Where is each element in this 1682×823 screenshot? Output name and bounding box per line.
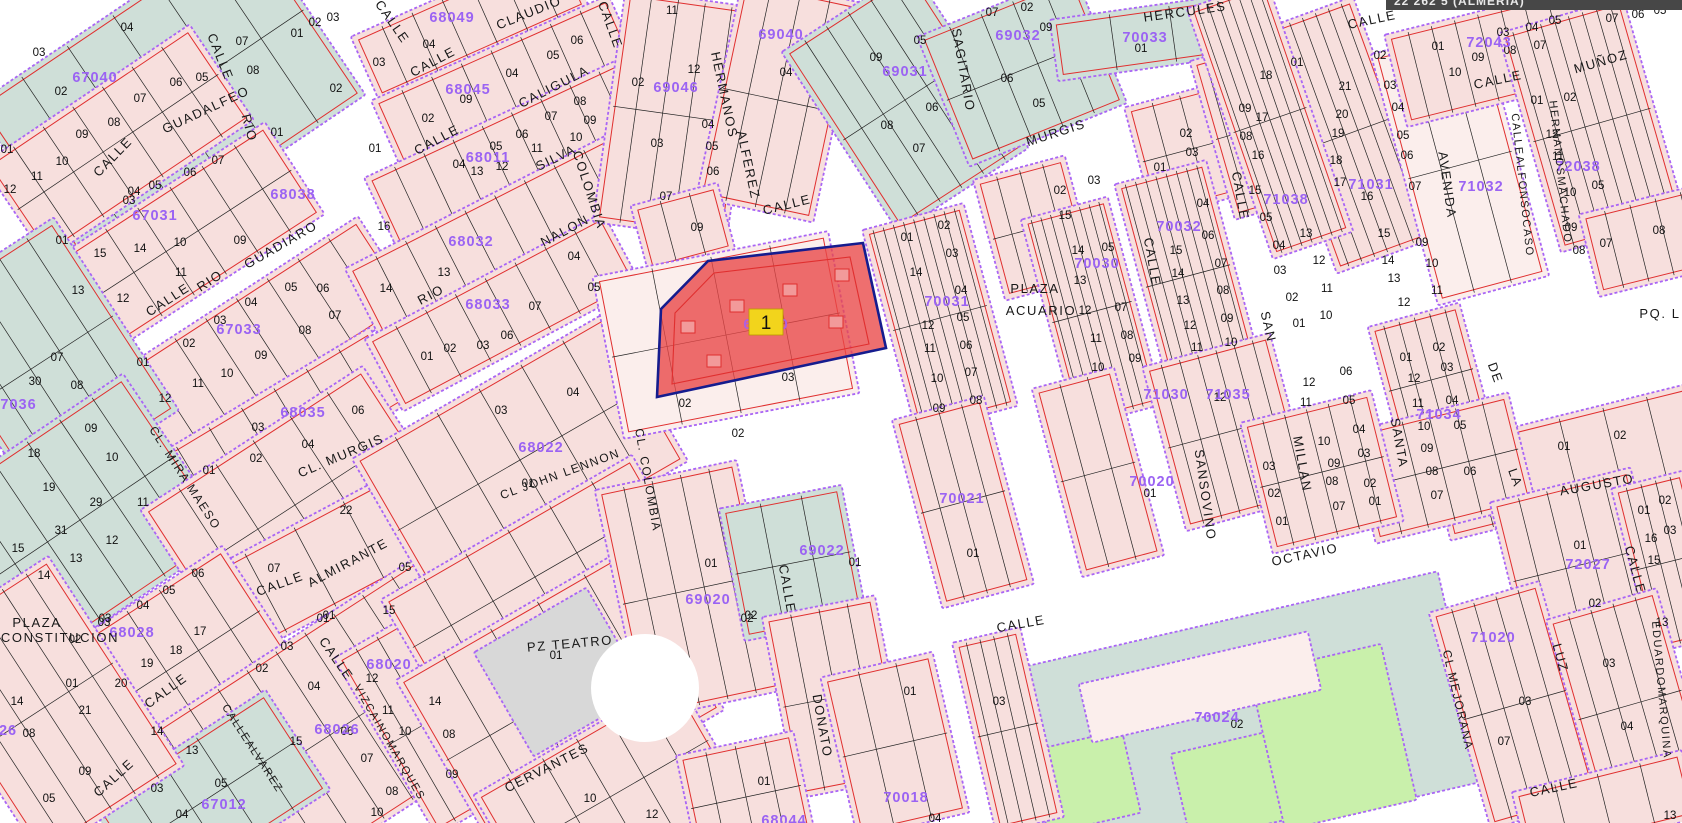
info-bar: 22 262 5 (ALMERIA) — [1386, 0, 1682, 10]
parcel-number: 05 — [957, 312, 970, 324]
selected-parcel-marker[interactable]: 1 — [749, 309, 783, 335]
block-id-label: 70030 — [1074, 256, 1119, 272]
parcel-number: 11 — [192, 378, 204, 390]
parcel-number: 05 — [196, 72, 209, 84]
parcel-number: 05 — [914, 35, 927, 47]
parcel-number: 08 — [108, 117, 121, 129]
parcel-number: 04 — [423, 39, 436, 51]
parcel-number: 05 — [1343, 395, 1356, 407]
courtyard — [707, 355, 721, 367]
block-id-label: 70021 — [939, 491, 984, 507]
parcel-number: 09 — [1129, 353, 1142, 365]
parcel-number: 02 — [256, 663, 269, 675]
parcel-number: 03 — [782, 372, 795, 384]
parcel-number: 08 — [23, 728, 36, 740]
parcel-number: 09 — [691, 222, 704, 234]
parcel-number: 02 — [1589, 598, 1602, 610]
parcel-number: 02 — [938, 220, 951, 232]
parcel-number: 06 — [571, 35, 584, 47]
parcel-number: 03 — [1186, 147, 1199, 159]
parcel-number: 03 — [1358, 448, 1371, 460]
parcel-number: 02 — [1614, 430, 1627, 442]
block-id-label: 68033 — [465, 297, 510, 313]
parcel-number: 12 — [106, 535, 119, 547]
parcel-number: 11 — [137, 497, 149, 509]
parcel-number: 02 — [250, 453, 263, 465]
parcel-number: 04 — [137, 600, 150, 612]
parcel-number: 07 — [268, 563, 281, 575]
roundabout — [591, 634, 699, 742]
parcel-number: 12 — [1398, 297, 1411, 309]
parcel-number: 02 — [1364, 478, 1377, 490]
parcel-number: 05 — [1033, 98, 1046, 110]
parcel-number: 02 — [444, 343, 457, 355]
parcel-number: 13 — [471, 166, 484, 178]
parcel-number: 01 — [369, 143, 382, 155]
parcel-number: 11 — [1321, 283, 1333, 295]
parcel-number: 08 — [71, 380, 84, 392]
block-id-label: 69046 — [653, 80, 698, 96]
parcel-number: 13 — [1074, 275, 1087, 287]
parcel-number: 11 — [31, 171, 43, 183]
parcel-number: 02 — [679, 398, 692, 410]
parcel-number: 16 — [378, 221, 391, 233]
parcel-number: 10 — [1449, 67, 1462, 79]
parcel-number: 13 — [438, 267, 451, 279]
parcel-number: 02 — [732, 428, 745, 440]
parcel-number: 09 — [1421, 443, 1434, 455]
parcel-number: 04 — [245, 297, 258, 309]
parcel-number: 10 — [1092, 362, 1105, 374]
block-id-label: 71020 — [1470, 630, 1515, 646]
block-id-label: 71031 — [1348, 177, 1393, 193]
parcel-number: 03 — [327, 12, 340, 24]
parcel-number: 07 — [965, 367, 978, 379]
block-id-label: 68045 — [445, 82, 490, 98]
parcel-number: 03 — [1088, 175, 1101, 187]
parcel-number: 07 — [1431, 490, 1444, 502]
parcel-number: 12 — [1184, 320, 1197, 332]
parcel-number: 03 — [1519, 696, 1532, 708]
parcel-number: 18 — [1260, 70, 1273, 82]
parcel-number: 03 — [993, 696, 1006, 708]
parcel-number: 09 — [1416, 237, 1429, 249]
parcel-number: 08 — [386, 786, 399, 798]
parcel-number: 07 — [329, 310, 342, 322]
parcel-number: 01 — [203, 465, 216, 477]
parcel-number: 05 — [43, 793, 56, 805]
parcel-number: 04 — [302, 439, 315, 451]
parcel-number: 08 — [881, 120, 894, 132]
parcel-number: 04 — [1353, 424, 1366, 436]
block-id-label: 68038 — [270, 187, 315, 203]
parcel-number: 14 — [38, 570, 51, 582]
parcel-number: 10 — [1320, 310, 1333, 322]
parcel-number: 04 — [1621, 721, 1634, 733]
parcel-number: 08 — [299, 325, 312, 337]
parcel-number: 01 — [849, 557, 862, 569]
parcel-number: 09 — [76, 129, 89, 141]
parcel-number: 02 — [1659, 495, 1672, 507]
parcel-number: 19 — [141, 658, 154, 670]
parcel-number: 02 — [1268, 488, 1281, 500]
parcel-number: 01 — [1638, 505, 1651, 517]
parcel-number: 01 — [1531, 95, 1544, 107]
parcel-number: 06 — [1401, 150, 1414, 162]
parcel-number: 12 — [366, 673, 379, 685]
parcel-number: 06 — [184, 167, 197, 179]
block-id-label: 71035 — [1205, 387, 1250, 403]
parcel-number: 16 — [1645, 533, 1658, 545]
block-id-label: 69040 — [758, 27, 803, 43]
parcel-number: 18 — [1330, 155, 1343, 167]
parcel-number: 02 — [309, 17, 322, 29]
parcel-number: 12 — [1079, 305, 1092, 317]
parcel-number: 08 — [1240, 131, 1253, 143]
block-id-label: 68044 — [761, 813, 806, 823]
block-id-label: 70018 — [883, 790, 928, 806]
block-id-label: 68022 — [518, 440, 563, 456]
parcel-number: 15 — [1170, 245, 1183, 257]
parcel-number: 04 — [702, 119, 715, 131]
parcel-number: 04 — [453, 159, 466, 171]
parcel-number: 02 — [1564, 92, 1577, 104]
parcel-number: 06 — [1202, 230, 1215, 242]
parcel-number: 06 — [352, 405, 365, 417]
parcel-number: 09 — [584, 115, 597, 127]
parcel-number: 02 — [1180, 128, 1193, 140]
parcel-number: 18 — [28, 448, 41, 460]
parcel-number: 15 — [1648, 555, 1661, 567]
parcel-number: 12 — [1303, 377, 1316, 389]
parcel-number: 13 — [1177, 295, 1190, 307]
parcel-number: 11 — [1191, 342, 1203, 354]
parcel-number: 06 — [516, 129, 529, 141]
parcel-number: 10 — [221, 368, 234, 380]
parcel-number: 31 — [55, 525, 68, 537]
parcel-number: 01 — [758, 776, 771, 788]
block-id-label: 71034 — [1416, 407, 1461, 423]
parcel-number: 09 — [1472, 52, 1485, 64]
parcel-number: 08 — [1326, 476, 1339, 488]
parcel-number: 07 — [1534, 40, 1547, 52]
block-id-label: 70031 — [924, 294, 969, 310]
parcel-number: 08 — [1426, 466, 1439, 478]
parcel-number: 06 — [707, 166, 720, 178]
parcel-number: 14 — [151, 726, 164, 738]
parcel-number: 01 — [901, 232, 914, 244]
block-id-label: 69031 — [882, 64, 927, 80]
parcel-number: 10 — [1318, 436, 1331, 448]
parcel-number: 01 — [1154, 162, 1167, 174]
parcel-number: 04 — [1526, 22, 1539, 34]
parcel-number: 03 — [123, 195, 136, 207]
parcel-number: 09 — [79, 766, 92, 778]
parcel-number: 10 — [1225, 337, 1238, 349]
parcel-number: 15 — [12, 543, 25, 555]
block-id-label: 67040 — [72, 70, 117, 86]
parcel-number: 01 — [1558, 441, 1571, 453]
block-id-label: 72027 — [1565, 557, 1610, 573]
parcel-number: 03 — [281, 641, 294, 653]
parcel-number: 20 — [115, 678, 128, 690]
parcel-number: 02 — [1433, 342, 1446, 354]
parcel-number: 09 — [446, 769, 459, 781]
parcel-number: 05 — [547, 50, 560, 62]
parcel-number: 09 — [255, 350, 268, 362]
parcel-number: 02 — [741, 613, 754, 625]
parcel-number: 14 — [380, 283, 393, 295]
parcel-number: 05 — [149, 180, 162, 192]
parcel-number: 29 — [90, 497, 103, 509]
parcel-number: 07 — [1215, 258, 1228, 270]
info-bar-text: 22 262 5 (ALMERIA) — [1386, 0, 1682, 8]
parcel-number: 01 — [66, 678, 79, 690]
parcel-number: 09 — [1221, 313, 1234, 325]
parcel-number: 07 — [986, 7, 999, 19]
parcel-number: 04 — [176, 809, 189, 821]
street-label: PQ. L — [1639, 306, 1680, 321]
parcel-number: 10 — [399, 726, 412, 738]
block-id-label: 70032 — [1156, 219, 1201, 235]
block-id-label: 67031 — [132, 208, 177, 224]
parcel-number: 07 — [1333, 501, 1346, 513]
parcel-number: 06 — [170, 77, 183, 89]
parcel-number: 20 — [1336, 109, 1349, 121]
parcel-number: 02 — [330, 83, 343, 95]
parcel-number: 13 — [1664, 810, 1677, 822]
parcel-number: 02 — [632, 77, 645, 89]
cadastral-map[interactable]: 0403020605070809101112010708010203030201… — [0, 0, 1682, 823]
parcel-number: 06 — [960, 340, 973, 352]
parcel-number: 06 — [192, 568, 205, 580]
parcel-number: 08 — [970, 395, 983, 407]
parcel-number: 03 — [1603, 658, 1616, 670]
block-id-label: 69032 — [995, 28, 1040, 44]
parcel-number: 01 — [1, 144, 14, 156]
block-id-label: 69020 — [685, 592, 730, 608]
parcel-number: 03 — [33, 47, 46, 59]
parcel-number: 07 — [660, 191, 673, 203]
courtyard — [681, 321, 695, 333]
parcel-number: 11 — [1431, 285, 1443, 297]
parcel-number: 14 — [11, 696, 24, 708]
block-id-label: 68011 — [466, 150, 511, 166]
parcel-number: 07 — [1409, 181, 1422, 193]
parcel-number: 08 — [443, 729, 456, 741]
parcel-number: 09 — [870, 52, 883, 64]
street-label: PLAZA — [1010, 281, 1059, 296]
parcel-number: 01 — [705, 558, 718, 570]
parcel-number: 08 — [247, 65, 260, 77]
parcel-number: 01 — [1369, 496, 1382, 508]
parcel-number: 02 — [422, 113, 435, 125]
parcel-number: 12 — [1313, 255, 1326, 267]
block-id-label: 69022 — [799, 543, 844, 559]
parcel-number: 10 — [584, 793, 597, 805]
parcel-number: 10 — [931, 373, 944, 385]
parcel-number: 02 — [55, 86, 68, 98]
parcel-number: 11 — [666, 5, 678, 17]
block-id-label: 71038 — [1263, 192, 1308, 208]
parcel-number: 11 — [175, 267, 187, 279]
block-id-label: 68032 — [448, 234, 493, 250]
parcel-number: 06 — [1632, 9, 1645, 21]
parcel-number: 06 — [1340, 366, 1353, 378]
parcel-number: 05 — [1592, 180, 1605, 192]
parcel-number: 14 — [910, 267, 923, 279]
street-label: DE — [1485, 360, 1506, 385]
map-viewport[interactable]: 0403020605070809101112010708010203030201… — [0, 0, 1682, 823]
parcel-number: 07 — [545, 111, 558, 123]
parcel-number: 01 — [967, 548, 980, 560]
block-id-label: 71030 — [1143, 387, 1188, 403]
block-id-label: 67033 — [216, 322, 261, 338]
parcel-number: 08 — [574, 96, 587, 108]
parcel-number: 21 — [79, 705, 92, 717]
block-id-label: 68049 — [429, 10, 474, 26]
parcel-number: 01 — [1291, 57, 1304, 69]
parcel-number: 08 — [1653, 225, 1666, 237]
parcel-number: 02 — [1286, 292, 1299, 304]
parcel-number: 07 — [1498, 736, 1511, 748]
parcel-number: 09 — [933, 403, 946, 415]
parcel-number: 15 — [1249, 185, 1262, 197]
parcel-number: 14 — [1382, 255, 1395, 267]
parcel-number: 11 — [924, 343, 936, 355]
parcel-number: 07 — [361, 753, 374, 765]
parcel-number: 05 — [163, 585, 176, 597]
parcel-number: 12 — [1408, 373, 1421, 385]
parcel-number: 12 — [117, 293, 130, 305]
parcel-number: 05 — [588, 282, 601, 294]
parcel-number: 01 — [421, 351, 434, 363]
parcel-number: 02 — [183, 338, 196, 350]
parcel-number: 02 — [1021, 2, 1034, 14]
parcel-number: 01 — [137, 357, 150, 369]
parcel-number: 03 — [1384, 80, 1397, 92]
parcel-number: 12 — [922, 320, 935, 332]
parcel-number: 10 — [371, 807, 384, 819]
parcel-number: 07 — [134, 93, 147, 105]
parcel-number: 01 — [1400, 352, 1413, 364]
parcel-number: 07 — [913, 143, 926, 155]
courtyard — [730, 300, 744, 312]
parcel-number: 01 — [317, 613, 330, 625]
parcel-number: 12 — [4, 184, 17, 196]
block-id-label: 70020 — [1129, 474, 1174, 490]
parcel-number: 13 — [186, 745, 199, 757]
parcel-number: 07 — [236, 36, 249, 48]
parcel-number: 01 — [1432, 41, 1445, 53]
parcel-number: 15 — [290, 736, 303, 748]
parcel-number: 13 — [70, 553, 83, 565]
parcel-number: 04 — [1392, 102, 1405, 114]
parcel-number: 30 — [29, 376, 42, 388]
parcel-number: 15 — [383, 605, 396, 617]
parcel-number: 13 — [1300, 228, 1313, 240]
parcel-number: 02 — [1374, 50, 1387, 62]
courtyard — [783, 284, 797, 296]
parcel-number: 09 — [1040, 22, 1053, 34]
parcel-number: 12 — [159, 393, 172, 405]
parcel-number: 11 — [382, 705, 394, 717]
parcel-number: 03 — [651, 138, 664, 150]
parcel-number: 13 — [1388, 273, 1401, 285]
parcel-number: 05 — [215, 778, 228, 790]
parcel-number: 06 — [1464, 466, 1477, 478]
parcel-number: 01 — [291, 28, 304, 40]
block-id-label: 27036 — [0, 397, 37, 413]
parcel-number: 08 — [1573, 245, 1586, 257]
marker-number: 1 — [761, 313, 772, 334]
parcel-number: 07 — [1600, 238, 1613, 250]
block-id-label: 70033 — [1122, 30, 1167, 46]
parcel-number: 03 — [151, 783, 164, 795]
parcel-number: 03 — [477, 340, 490, 352]
parcel-number: 02 — [1054, 185, 1067, 197]
block-id-label: 26 — [0, 723, 17, 739]
parcel-number: 03 — [1263, 461, 1276, 473]
parcel-number: 06 — [1001, 73, 1014, 85]
courtyard — [829, 316, 843, 328]
parcel-number: 19 — [1332, 128, 1345, 140]
parcel-number: 09 — [1328, 458, 1341, 470]
parcel-number: 06 — [501, 330, 514, 342]
parcel-number: 07 — [212, 155, 225, 167]
parcel-number: 21 — [1339, 81, 1352, 93]
parcel-number: 17 — [1334, 177, 1347, 189]
parcel-number: 08 — [1217, 285, 1230, 297]
parcel-number: 03 — [495, 405, 508, 417]
parcel-number: 04 — [1446, 395, 1459, 407]
parcel-number: 06 — [317, 283, 330, 295]
parcel-number: 07 — [51, 352, 64, 364]
parcel-number: 04 — [121, 22, 134, 34]
parcel-number: 05 — [1549, 15, 1562, 27]
parcel-number: 14 — [429, 696, 442, 708]
parcel-number: 09 — [1239, 103, 1252, 115]
block-id-label: 68035 — [280, 405, 325, 421]
parcel-number: 07 — [1115, 302, 1128, 314]
parcel-number: 04 — [568, 251, 581, 263]
parcel-number: 22 — [340, 505, 353, 517]
parcel-number: 05 — [1102, 242, 1115, 254]
parcel-number: 05 — [1397, 130, 1410, 142]
parcel-number: 01 — [1293, 318, 1306, 330]
block-id-label: 68020 — [366, 657, 411, 673]
parcel-number: 14 — [134, 243, 147, 255]
parcel-number: 05 — [399, 562, 412, 574]
parcel-number: 04 — [929, 813, 942, 823]
block-id-label: 67012 — [201, 797, 246, 813]
parcel-number: 17 — [1256, 112, 1269, 124]
street-label: ACUARIO — [1006, 303, 1076, 318]
parcel-number: 01 — [904, 686, 917, 698]
parcel-number: 17 — [194, 626, 207, 638]
parcel-number: 10 — [56, 156, 69, 168]
parcel-number: 13 — [72, 285, 85, 297]
parcel-number: 01 — [56, 235, 69, 247]
parcel-number: 18 — [170, 645, 183, 657]
parcel-number: 04 — [567, 387, 580, 399]
parcel-number: 03 — [1441, 362, 1454, 374]
parcel-number: 05 — [706, 141, 719, 153]
parcel-number: 10 — [106, 452, 119, 464]
parcel-number: 04 — [308, 681, 321, 693]
parcel-number: 12 — [688, 64, 701, 76]
parcel-number: 11 — [531, 143, 543, 155]
